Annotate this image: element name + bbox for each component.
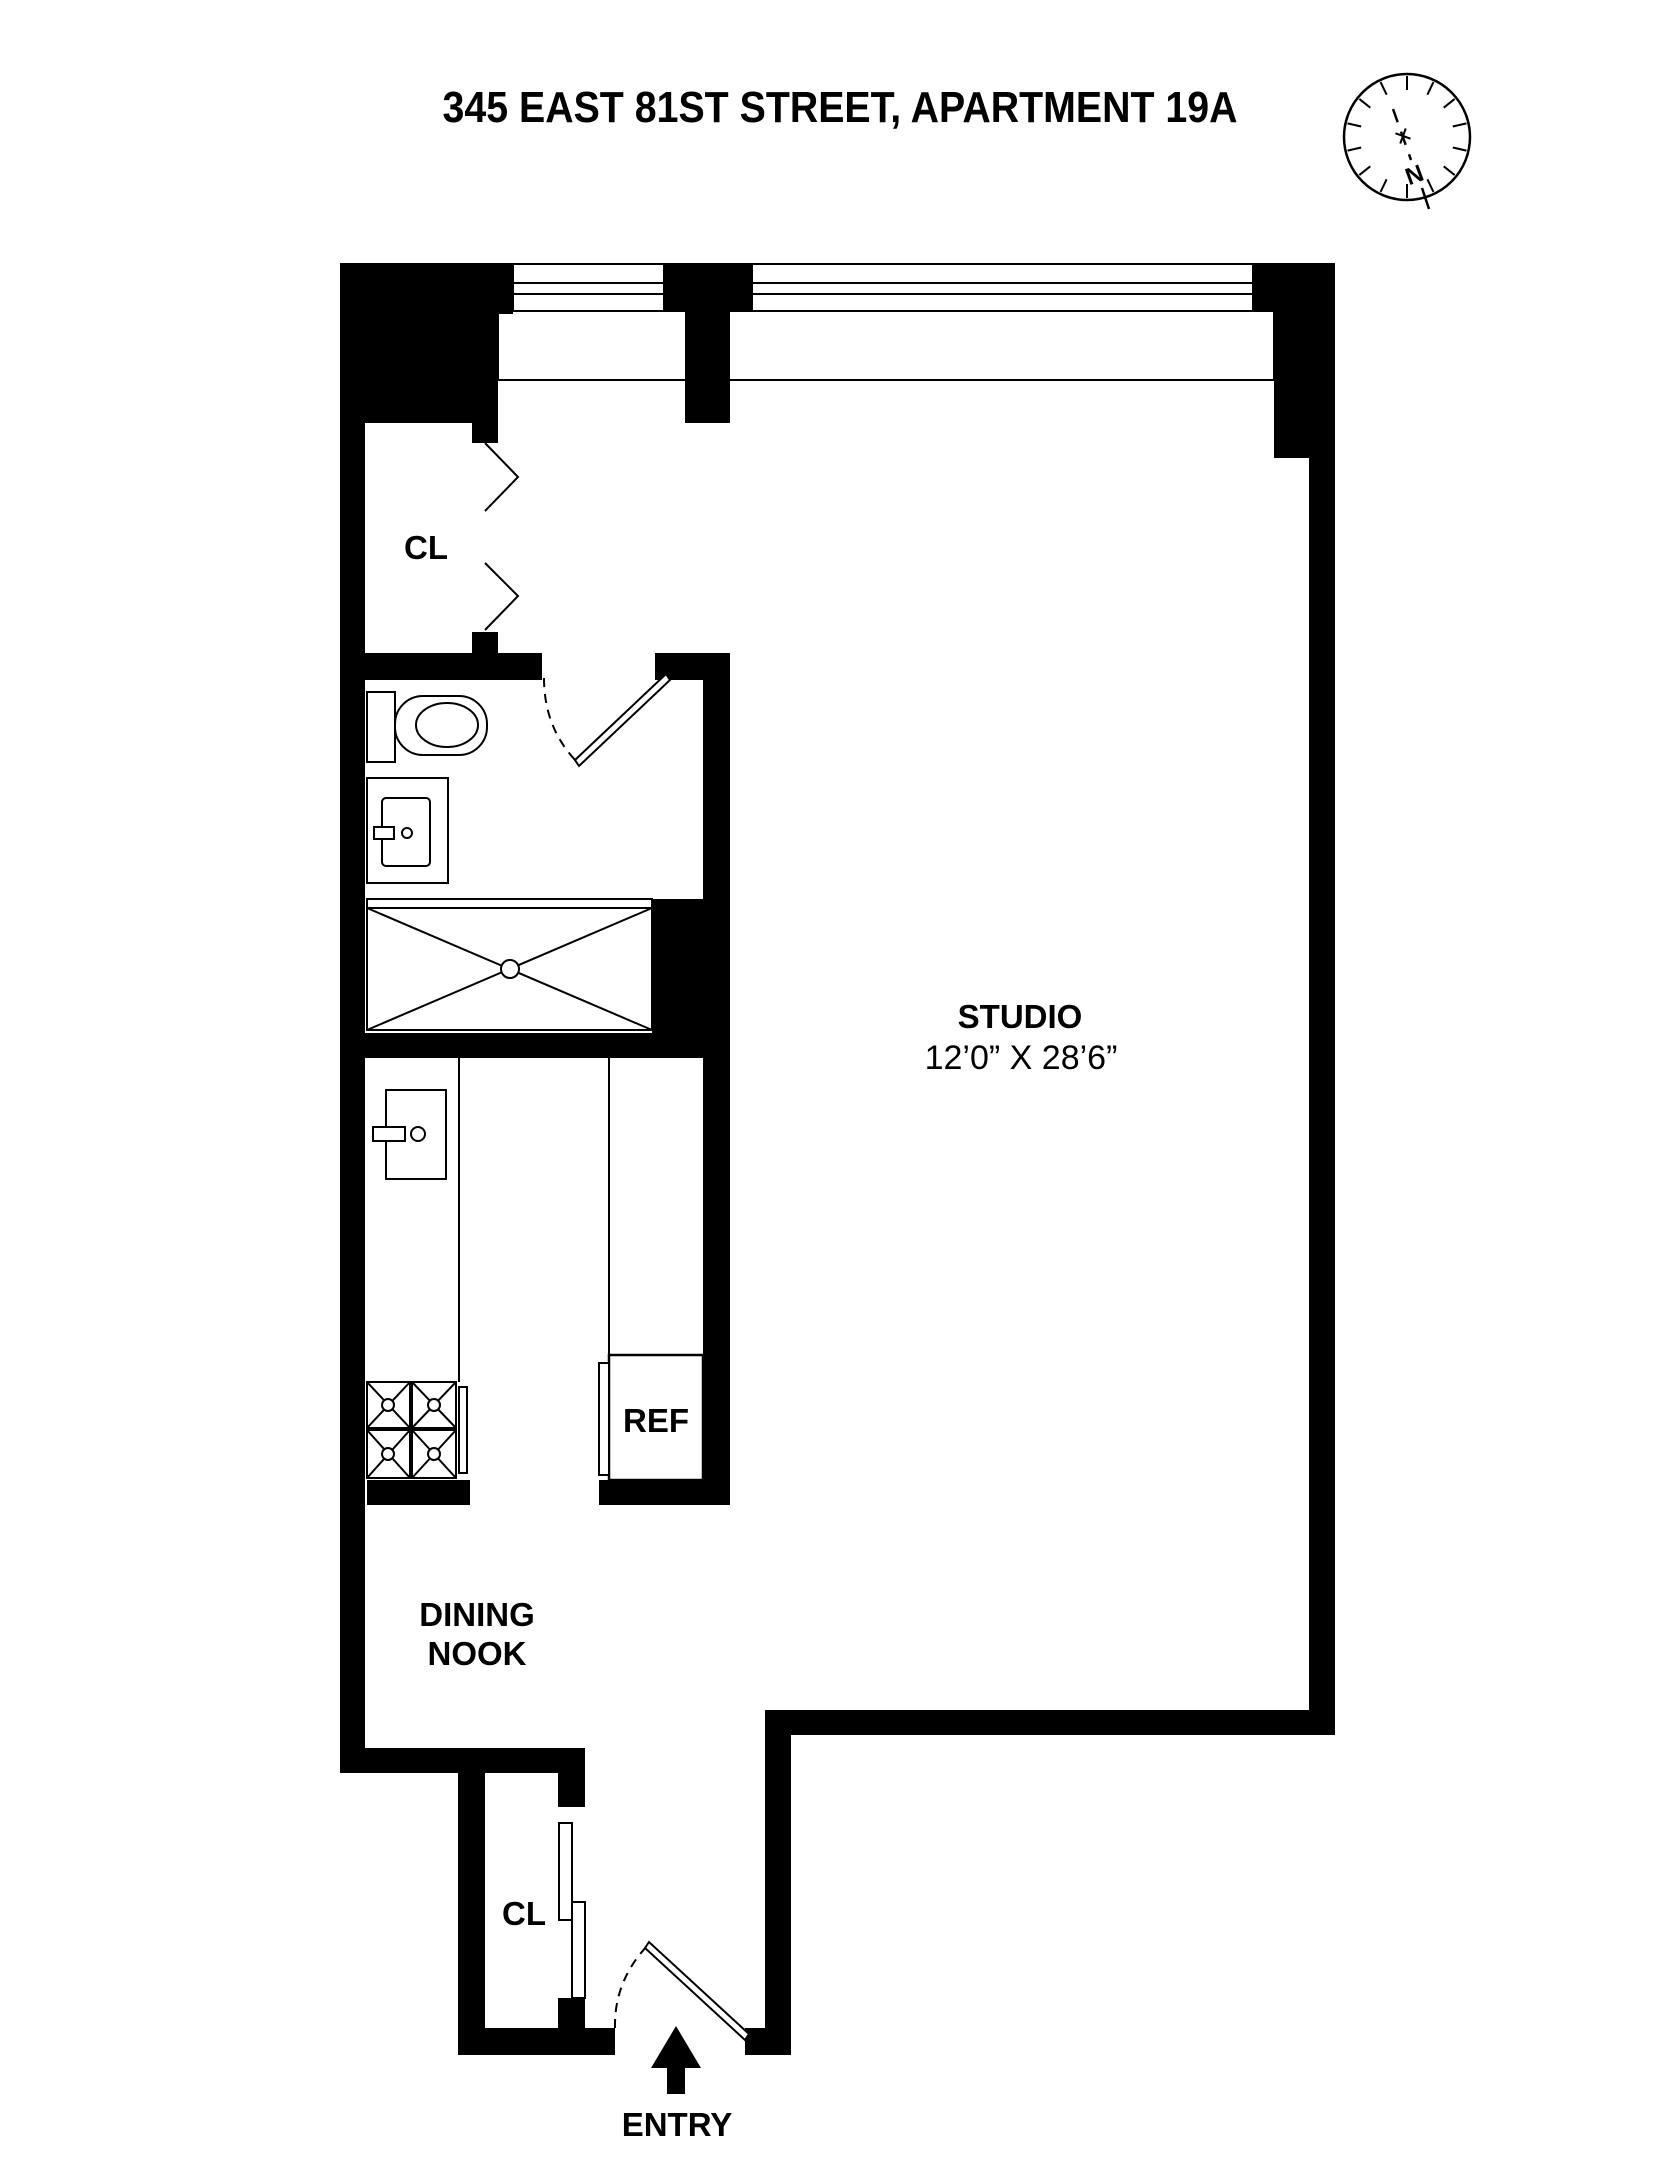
wall-segment <box>1253 263 1335 312</box>
refrigerator-label: REF <box>623 1402 689 1439</box>
floorplan-page: 345 EAST 81ST STREET, APARTMENT 19A N <box>0 0 1669 2160</box>
compass-center-cross <box>1393 126 1414 147</box>
wall-segment <box>367 1480 470 1505</box>
closet-entry-label: CL <box>502 1895 546 1932</box>
wall-segment <box>765 1710 791 2055</box>
wall-segment <box>340 263 365 1773</box>
wall-segment <box>1309 312 1335 1735</box>
wall-segment <box>599 1480 730 1505</box>
window-right <box>752 264 1253 311</box>
kitchen-counters <box>459 1058 609 1382</box>
entry-arrow-icon <box>651 2026 701 2094</box>
wall-segment <box>685 312 730 423</box>
stove-icon <box>367 1382 467 1478</box>
wall-segment <box>703 678 730 899</box>
window-left <box>513 264 664 311</box>
kitchen-sink-icon <box>373 1090 446 1179</box>
shower-icon <box>367 899 652 1030</box>
sliding-door-icon <box>559 1823 585 1998</box>
entry-door-icon <box>615 1942 749 2040</box>
wall-segment <box>1274 312 1335 458</box>
dining-nook-label-line2: NOOK <box>428 1635 527 1672</box>
wall-segment <box>472 632 498 655</box>
wall-segment <box>472 423 498 443</box>
wall-segment <box>458 2028 615 2055</box>
wall-segment <box>458 1773 485 2055</box>
oven-handle <box>459 1387 467 1473</box>
wall-segment <box>340 653 542 680</box>
compass-needle-upper <box>1393 109 1411 160</box>
wall-segment <box>652 899 730 1033</box>
wall-segment <box>558 1998 585 2028</box>
studio-dimensions: 12’0” X 28’6” <box>925 1039 1118 1077</box>
wall-segment <box>340 1748 585 1773</box>
closet-upper-label: CL <box>404 529 448 566</box>
windows <box>498 264 1274 380</box>
wall-segment <box>340 263 498 423</box>
page-title: 345 EAST 81ST STREET, APARTMENT 19A <box>443 83 1238 132</box>
studio-label: STUDIO <box>958 998 1083 1035</box>
bathroom-door-icon <box>544 674 670 766</box>
bathroom-sink-icon <box>367 778 448 883</box>
wall-segment <box>664 263 752 312</box>
dining-nook-label-line1: DINING <box>419 1596 535 1633</box>
compass-north-label: N <box>1401 158 1427 189</box>
floor-plan: 345 EAST 81ST STREET, APARTMENT 19A N <box>0 0 1669 2160</box>
bifold-door-icon <box>485 443 518 630</box>
toilet-icon <box>367 692 487 762</box>
wall-segment <box>703 1058 730 1505</box>
north-compass-icon: N <box>1344 74 1470 209</box>
entry-label: ENTRY <box>622 2106 733 2143</box>
wall-segment <box>765 1710 1335 1735</box>
walls <box>340 263 1335 2055</box>
wall-segment <box>340 1033 730 1058</box>
wall-segment <box>558 1773 585 1807</box>
